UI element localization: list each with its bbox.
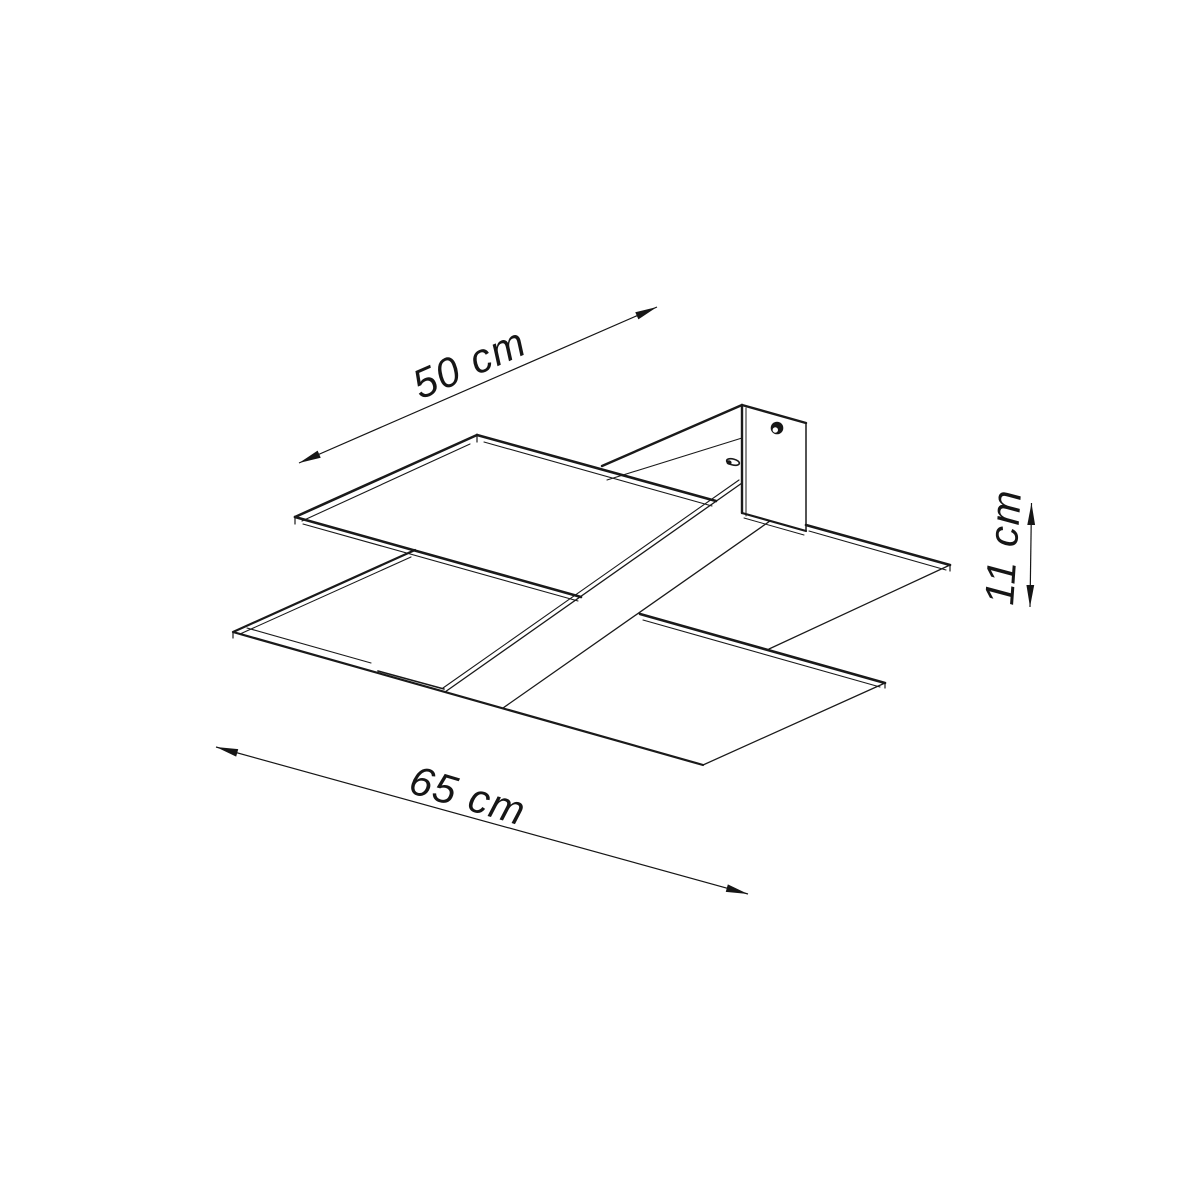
dimension-height-label: 11 cm [976,488,1030,607]
dimension-depth-label: 50 cm [406,318,534,408]
dimension-height: 11 cm [976,488,1031,607]
lamp-dimension-diagram: 50 cm 65 cm 11 cm [0,0,1200,1200]
diagonal-strap [443,480,770,708]
cable-slot [726,458,740,467]
dimension-depth-arrow [299,307,657,463]
technical-drawing-canvas: 50 cm 65 cm 11 cm [0,0,1200,1200]
screw-hole [771,422,784,435]
lower-glass-panel [233,550,885,765]
dimension-width-label: 65 cm [404,757,531,835]
dimension-width: 65 cm [216,747,748,894]
dimension-height-arrow [1030,503,1032,607]
dimension-depth: 50 cm [299,307,657,463]
